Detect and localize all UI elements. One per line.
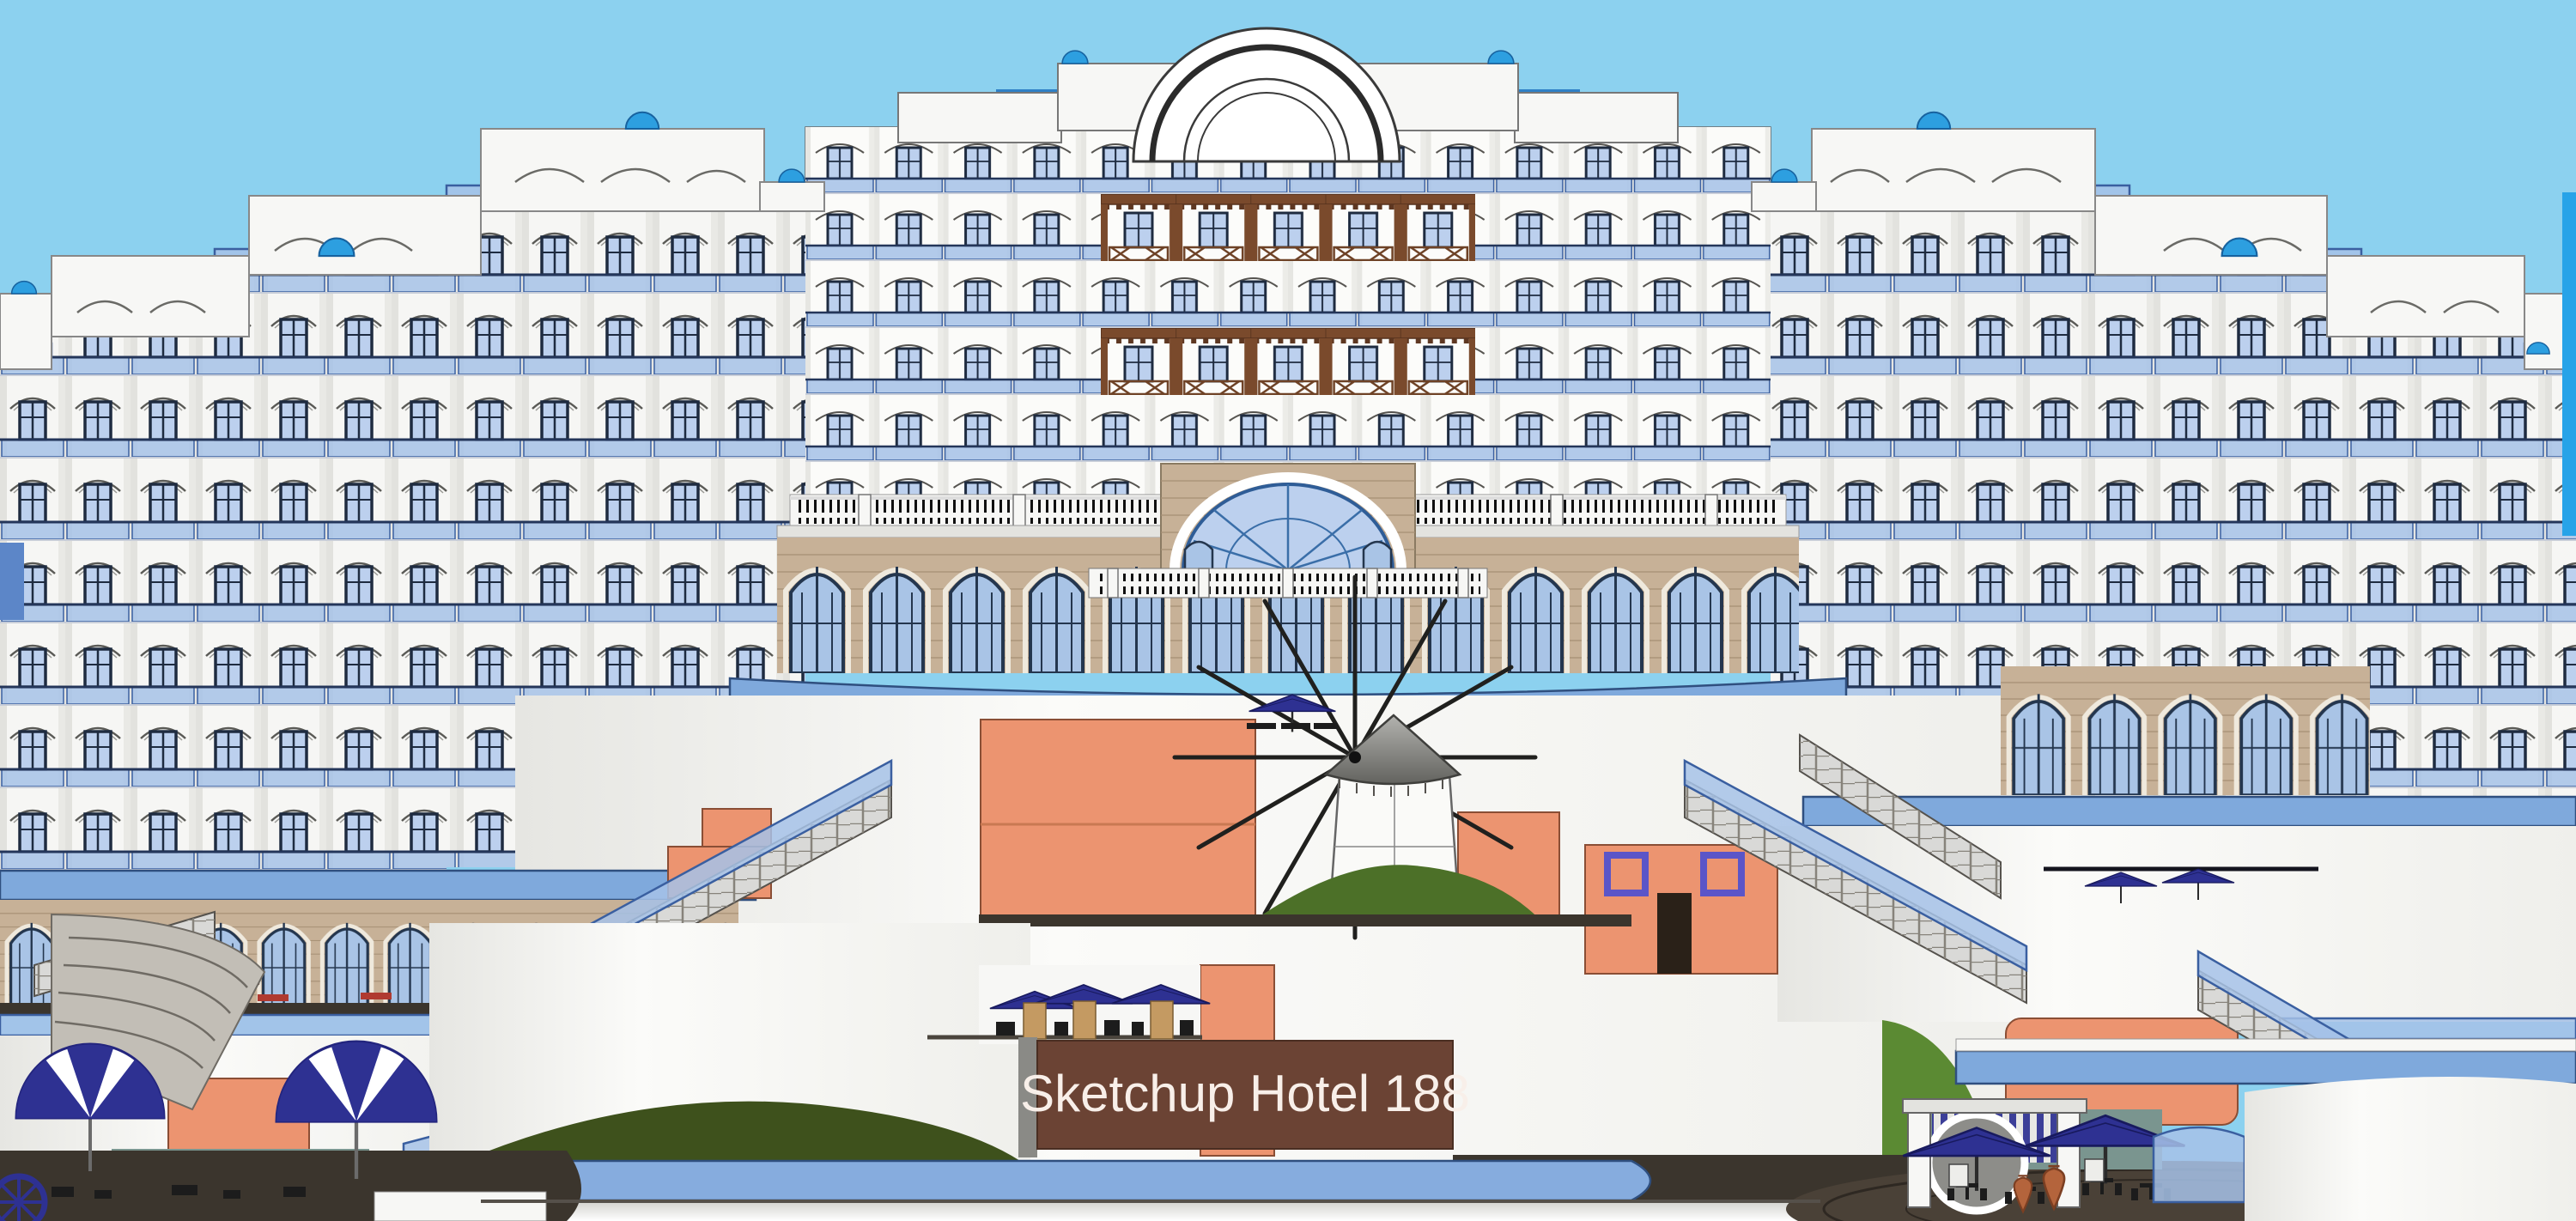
umbrella-base	[1024, 1003, 1046, 1039]
salmon-wall	[981, 720, 1255, 924]
ledge	[1956, 1039, 2576, 1051]
pergola-balcony-floor	[1101, 194, 1475, 261]
hotel-rendering: Sketchup Hotel 188	[0, 0, 2576, 1221]
portal-wall	[1585, 845, 1777, 974]
planter-box	[374, 1192, 546, 1221]
terrace-floor	[979, 914, 1631, 926]
pergola-balcony-floor	[1101, 328, 1475, 395]
brick-arcade	[2001, 666, 2370, 795]
curved-glass-wall	[2154, 1127, 2245, 1202]
umbrella-base	[1073, 1001, 1096, 1039]
curved-wall	[2245, 1077, 2576, 1221]
pergola-beam	[1903, 1099, 2087, 1113]
hotel-sign: Sketchup Hotel 188	[1018, 1037, 1470, 1157]
glass-stack	[2562, 192, 2576, 536]
glass-stack	[0, 543, 24, 620]
sign-text: Sketchup Hotel 188	[1020, 1065, 1470, 1122]
umbrella-base	[1151, 1001, 1173, 1039]
